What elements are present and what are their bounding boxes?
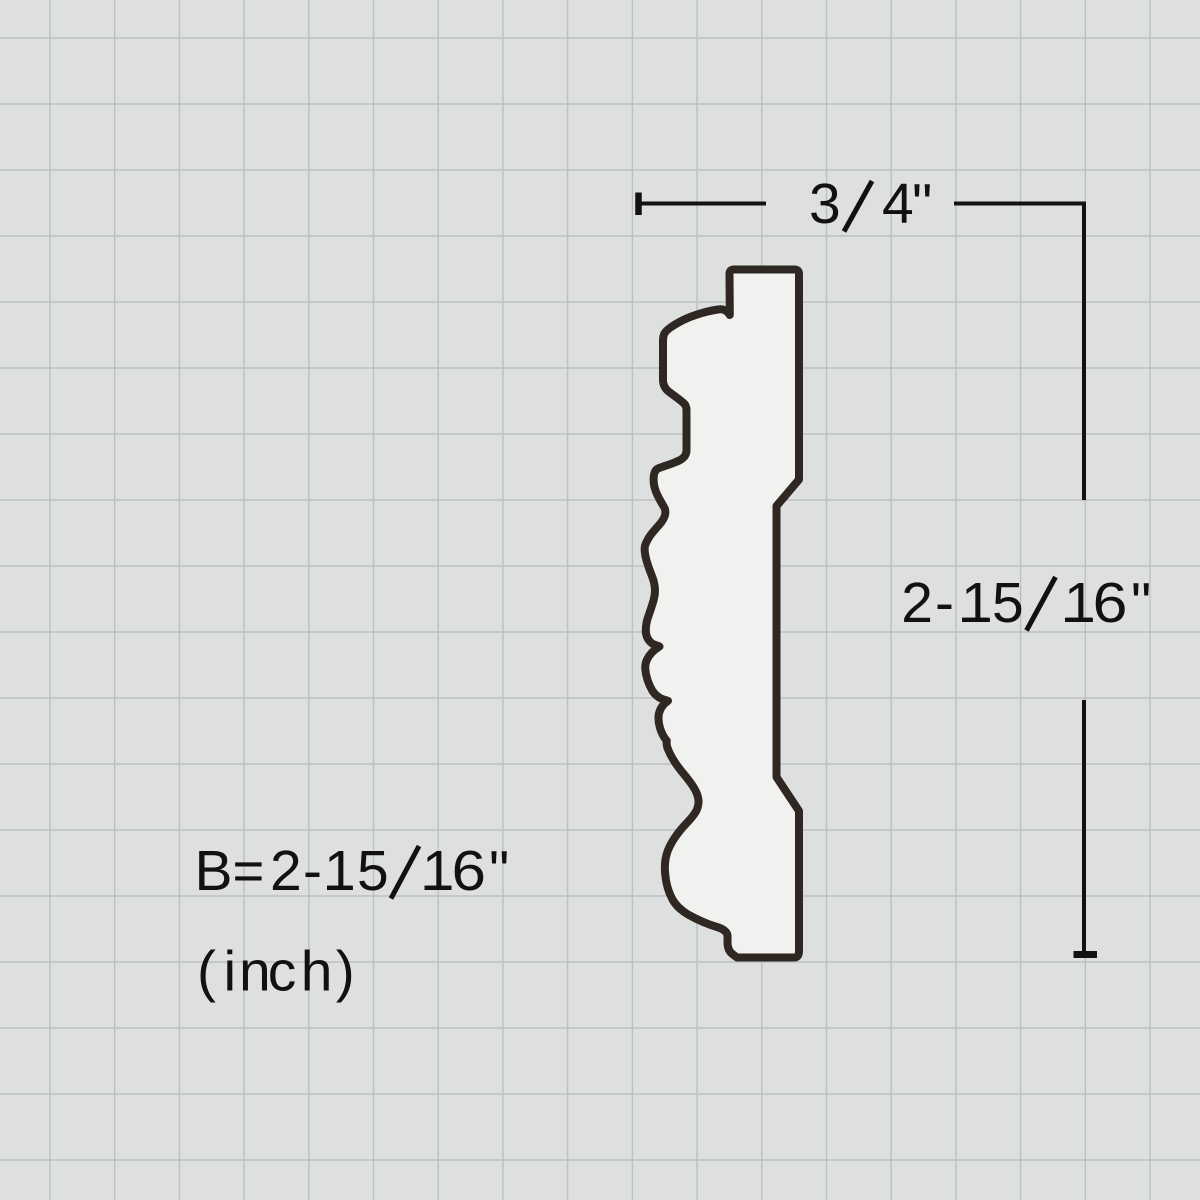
svg-text:-: - xyxy=(935,571,954,635)
svg-text:": " xyxy=(912,172,932,236)
svg-text:4: 4 xyxy=(882,172,914,236)
svg-text:2: 2 xyxy=(901,571,933,635)
svg-text:=: = xyxy=(233,839,265,903)
svg-text:B: B xyxy=(195,839,233,903)
svg-text:1: 1 xyxy=(1064,571,1096,635)
svg-text:1: 1 xyxy=(324,839,356,903)
svg-text:(: ( xyxy=(197,940,216,1004)
svg-text:": " xyxy=(489,839,509,903)
svg-text:6: 6 xyxy=(1093,571,1128,635)
svg-text:c: c xyxy=(268,940,297,1004)
svg-text:h: h xyxy=(301,940,333,1004)
svg-text:n: n xyxy=(239,940,271,1004)
svg-text:5: 5 xyxy=(357,839,389,903)
svg-text:6: 6 xyxy=(452,839,487,903)
svg-text:i: i xyxy=(224,940,237,1004)
svg-text:": " xyxy=(1131,571,1151,635)
svg-text:5: 5 xyxy=(992,571,1024,635)
svg-text:1: 1 xyxy=(422,839,454,903)
svg-text:3: 3 xyxy=(809,172,841,236)
svg-text:2: 2 xyxy=(270,839,302,903)
svg-text:): ) xyxy=(336,940,355,1004)
svg-text:1: 1 xyxy=(961,571,993,635)
svg-text:-: - xyxy=(303,839,322,903)
